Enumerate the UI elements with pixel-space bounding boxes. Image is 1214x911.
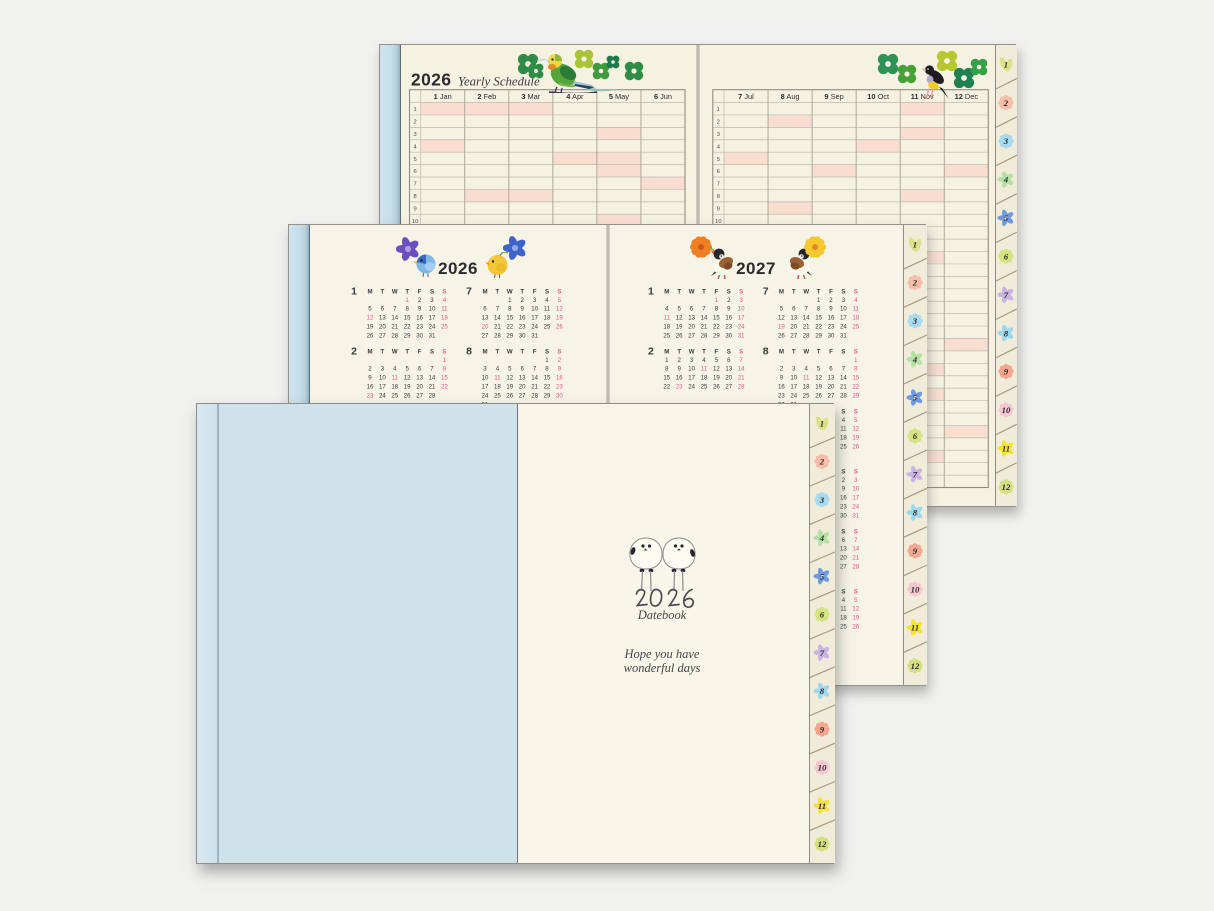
svg-text:18: 18	[441, 315, 448, 322]
svg-text:15: 15	[506, 315, 513, 322]
svg-text:4: 4	[496, 366, 500, 373]
svg-text:8: 8	[466, 346, 472, 358]
svg-text:M: M	[482, 348, 487, 355]
svg-text:4: 4	[702, 357, 706, 364]
svg-text:3: 3	[842, 297, 846, 304]
svg-text:W: W	[392, 348, 398, 355]
svg-text:28: 28	[852, 564, 859, 571]
svg-text:19: 19	[713, 375, 720, 382]
svg-text:S: S	[854, 408, 858, 415]
svg-text:14: 14	[429, 375, 436, 382]
svg-text:25: 25	[391, 392, 398, 399]
svg-text:5: 5	[717, 157, 720, 163]
svg-text:S: S	[727, 288, 731, 295]
svg-text:8: 8	[763, 346, 769, 358]
svg-text:F: F	[533, 348, 537, 355]
svg-text:22: 22	[852, 384, 859, 391]
svg-text:14: 14	[531, 375, 538, 382]
svg-text:1: 1	[717, 107, 720, 113]
svg-text:S: S	[557, 288, 561, 295]
svg-text:6 Jun: 6 Jun	[654, 92, 672, 101]
svg-text:21: 21	[738, 375, 745, 382]
svg-text:3: 3	[717, 132, 720, 138]
svg-text:12: 12	[818, 839, 827, 849]
svg-text:24: 24	[790, 392, 797, 399]
svg-text:28: 28	[840, 392, 847, 399]
svg-text:20: 20	[840, 555, 847, 562]
svg-text:25: 25	[803, 392, 810, 399]
svg-text:6: 6	[413, 169, 416, 175]
svg-text:17: 17	[482, 384, 489, 391]
svg-text:T: T	[817, 288, 821, 295]
svg-text:4: 4	[545, 297, 549, 304]
svg-text:17: 17	[738, 315, 745, 322]
svg-text:3: 3	[740, 297, 744, 304]
svg-text:25: 25	[544, 324, 551, 331]
svg-text:31: 31	[429, 332, 436, 339]
svg-text:2027: 2027	[736, 259, 776, 278]
svg-text:31: 31	[852, 512, 859, 519]
svg-text:7: 7	[763, 286, 769, 298]
svg-text:T: T	[817, 348, 821, 355]
svg-text:21: 21	[803, 324, 810, 331]
svg-text:8: 8	[717, 194, 720, 200]
svg-text:11: 11	[911, 623, 919, 633]
svg-text:18: 18	[803, 384, 810, 391]
svg-text:T: T	[677, 288, 681, 295]
svg-text:S: S	[841, 588, 845, 595]
svg-text:26: 26	[778, 332, 785, 339]
svg-text:31: 31	[840, 332, 847, 339]
svg-text:10: 10	[429, 306, 436, 313]
svg-text:S: S	[854, 588, 858, 595]
svg-text:3: 3	[854, 477, 858, 484]
svg-text:26: 26	[852, 444, 859, 451]
svg-text:7 Jul: 7 Jul	[738, 92, 754, 101]
svg-text:24: 24	[738, 324, 745, 331]
svg-text:31: 31	[738, 332, 745, 339]
svg-text:13: 13	[828, 375, 835, 382]
svg-text:6: 6	[717, 169, 720, 175]
svg-text:23: 23	[556, 384, 563, 391]
svg-text:7: 7	[913, 469, 918, 479]
svg-text:1: 1	[413, 107, 416, 113]
svg-text:F: F	[715, 348, 719, 355]
svg-text:6: 6	[1004, 252, 1009, 262]
svg-text:7: 7	[854, 537, 858, 544]
svg-text:20: 20	[725, 375, 732, 382]
svg-text:7: 7	[496, 306, 500, 313]
svg-text:12: 12	[676, 315, 683, 322]
svg-text:1: 1	[351, 286, 357, 298]
svg-text:17: 17	[379, 384, 386, 391]
svg-text:9: 9	[418, 306, 422, 313]
svg-text:16: 16	[725, 315, 732, 322]
svg-text:11: 11	[853, 306, 860, 313]
svg-text:T: T	[792, 348, 796, 355]
svg-text:2: 2	[558, 357, 562, 364]
svg-text:13: 13	[416, 375, 423, 382]
svg-text:W: W	[507, 348, 513, 355]
svg-text:27: 27	[416, 392, 423, 399]
svg-text:F: F	[533, 288, 537, 295]
svg-text:T: T	[405, 288, 409, 295]
svg-text:29: 29	[506, 332, 513, 339]
svg-text:W: W	[392, 288, 398, 295]
svg-text:19: 19	[676, 324, 683, 331]
svg-text:4: 4	[842, 417, 846, 424]
svg-text:25: 25	[852, 324, 859, 331]
svg-text:2: 2	[912, 278, 918, 288]
svg-text:4 Apr: 4 Apr	[566, 92, 584, 101]
svg-text:1: 1	[715, 297, 719, 304]
svg-text:28: 28	[429, 392, 436, 399]
svg-text:5: 5	[508, 366, 512, 373]
svg-text:11: 11	[392, 375, 399, 382]
svg-text:13: 13	[482, 315, 489, 322]
svg-text:5: 5	[913, 393, 918, 403]
svg-text:4: 4	[443, 297, 447, 304]
svg-text:18: 18	[840, 615, 847, 622]
svg-text:30: 30	[840, 512, 847, 519]
svg-text:15: 15	[663, 375, 670, 382]
svg-text:23: 23	[778, 392, 785, 399]
svg-text:10: 10	[531, 306, 538, 313]
svg-text:20: 20	[688, 324, 695, 331]
svg-text:12: 12	[556, 306, 563, 313]
svg-text:25: 25	[494, 392, 501, 399]
svg-text:8: 8	[817, 306, 821, 313]
svg-text:4: 4	[854, 297, 858, 304]
svg-text:9: 9	[913, 546, 918, 556]
svg-text:1: 1	[648, 286, 654, 298]
svg-text:2: 2	[727, 297, 731, 304]
svg-text:20: 20	[519, 384, 526, 391]
svg-text:6: 6	[820, 610, 825, 620]
svg-text:6: 6	[842, 537, 846, 544]
svg-text:20: 20	[790, 324, 797, 331]
svg-text:2: 2	[351, 346, 357, 358]
svg-text:7: 7	[805, 306, 809, 313]
svg-text:26: 26	[404, 392, 411, 399]
svg-text:23: 23	[416, 324, 423, 331]
svg-text:19: 19	[506, 384, 513, 391]
svg-text:3: 3	[1003, 136, 1009, 146]
svg-text:16: 16	[519, 315, 526, 322]
svg-text:T: T	[520, 288, 524, 295]
svg-text:17: 17	[840, 315, 847, 322]
svg-text:21: 21	[494, 324, 501, 331]
svg-text:2: 2	[829, 297, 833, 304]
svg-text:3: 3	[912, 316, 918, 326]
svg-text:26: 26	[506, 392, 513, 399]
svg-text:16: 16	[778, 384, 785, 391]
svg-text:2 Feb: 2 Feb	[477, 92, 496, 101]
svg-text:21: 21	[531, 384, 538, 391]
svg-text:21: 21	[840, 384, 847, 391]
svg-text:13: 13	[790, 315, 797, 322]
svg-text:5: 5	[558, 297, 562, 304]
svg-text:8: 8	[913, 508, 918, 518]
svg-text:2: 2	[842, 477, 846, 484]
svg-text:2: 2	[648, 346, 654, 358]
svg-text:21: 21	[429, 384, 436, 391]
svg-text:9: 9	[829, 306, 833, 313]
svg-text:9: 9	[678, 366, 682, 373]
svg-text:F: F	[418, 348, 422, 355]
svg-text:7: 7	[413, 182, 416, 188]
svg-text:5: 5	[678, 306, 682, 313]
svg-text:6: 6	[727, 357, 731, 364]
svg-text:20: 20	[482, 324, 489, 331]
svg-text:11: 11	[840, 606, 847, 613]
svg-text:25: 25	[840, 444, 847, 451]
svg-text:29: 29	[404, 332, 411, 339]
svg-text:6: 6	[418, 366, 422, 373]
svg-text:15: 15	[544, 375, 551, 382]
svg-text:17: 17	[688, 375, 695, 382]
svg-text:18: 18	[663, 324, 670, 331]
svg-text:9: 9	[727, 306, 731, 313]
svg-text:M: M	[779, 348, 784, 355]
svg-text:12: 12	[911, 661, 920, 671]
svg-text:S: S	[841, 468, 845, 475]
svg-text:5: 5	[1004, 213, 1009, 223]
svg-text:W: W	[507, 288, 513, 295]
svg-text:15: 15	[713, 315, 720, 322]
svg-text:6: 6	[829, 366, 833, 373]
svg-text:12: 12	[852, 426, 859, 433]
svg-text:26: 26	[852, 624, 859, 631]
svg-text:4: 4	[665, 306, 669, 313]
svg-text:28: 28	[701, 332, 708, 339]
svg-text:T: T	[677, 348, 681, 355]
svg-text:W: W	[803, 348, 809, 355]
svg-text:19: 19	[367, 324, 374, 331]
svg-text:16: 16	[367, 384, 374, 391]
svg-text:16: 16	[840, 495, 847, 502]
svg-text:11: 11	[803, 375, 810, 382]
svg-text:20: 20	[416, 384, 423, 391]
svg-text:S: S	[841, 288, 845, 295]
svg-text:6: 6	[913, 431, 918, 441]
svg-text:6: 6	[792, 306, 796, 313]
svg-text:13: 13	[519, 375, 526, 382]
svg-text:23: 23	[725, 324, 732, 331]
svg-text:3: 3	[533, 297, 537, 304]
svg-text:T: T	[792, 288, 796, 295]
svg-text:28: 28	[494, 332, 501, 339]
svg-text:27: 27	[519, 392, 526, 399]
svg-text:2: 2	[1003, 98, 1009, 108]
svg-text:2: 2	[413, 120, 416, 126]
svg-text:18: 18	[544, 315, 551, 322]
svg-text:7: 7	[430, 366, 434, 373]
svg-text:S: S	[557, 348, 561, 355]
svg-text:M: M	[779, 288, 784, 295]
svg-text:26: 26	[367, 332, 374, 339]
svg-text:10: 10	[482, 375, 489, 382]
svg-text:T: T	[496, 348, 500, 355]
svg-text:10: 10	[790, 375, 797, 382]
svg-text:4: 4	[1003, 175, 1009, 185]
svg-text:15: 15	[441, 375, 448, 382]
svg-text:24: 24	[429, 324, 436, 331]
svg-text:13: 13	[688, 315, 695, 322]
svg-text:28: 28	[738, 384, 745, 391]
svg-text:T: T	[381, 348, 385, 355]
svg-text:F: F	[829, 348, 833, 355]
svg-text:S: S	[430, 348, 434, 355]
svg-text:11: 11	[840, 426, 847, 433]
svg-text:2026: 2026	[411, 70, 451, 90]
svg-text:2: 2	[717, 120, 720, 126]
svg-text:17: 17	[790, 384, 797, 391]
svg-text:4: 4	[912, 354, 918, 364]
svg-text:S: S	[854, 468, 858, 475]
svg-text:12: 12	[1002, 482, 1011, 492]
svg-text:11: 11	[1002, 444, 1010, 454]
svg-text:22: 22	[441, 384, 448, 391]
svg-text:3: 3	[413, 132, 416, 138]
svg-text:5: 5	[715, 357, 719, 364]
svg-text:W: W	[689, 288, 695, 295]
svg-text:7: 7	[466, 286, 472, 298]
svg-text:23: 23	[519, 324, 526, 331]
svg-text:24: 24	[840, 324, 847, 331]
svg-text:5: 5	[820, 571, 825, 581]
svg-text:19: 19	[778, 324, 785, 331]
svg-text:3: 3	[792, 366, 796, 373]
svg-text:6: 6	[483, 306, 487, 313]
svg-text:27: 27	[840, 564, 847, 571]
svg-text:18: 18	[701, 375, 708, 382]
svg-text:27: 27	[790, 332, 797, 339]
svg-text:30: 30	[519, 332, 526, 339]
svg-text:15: 15	[815, 315, 822, 322]
svg-text:10: 10	[1002, 405, 1011, 415]
svg-text:M: M	[664, 348, 669, 355]
svg-text:12: 12	[713, 366, 720, 373]
svg-text:S: S	[841, 408, 845, 415]
svg-text:S: S	[442, 348, 446, 355]
svg-text:16: 16	[676, 375, 683, 382]
svg-text:13: 13	[840, 546, 847, 553]
svg-text:T: T	[520, 348, 524, 355]
svg-text:14: 14	[391, 315, 398, 322]
svg-text:2: 2	[418, 297, 422, 304]
svg-text:2: 2	[521, 297, 525, 304]
svg-text:29: 29	[544, 392, 551, 399]
svg-text:S: S	[739, 348, 743, 355]
svg-text:24: 24	[379, 392, 386, 399]
svg-text:7: 7	[717, 182, 720, 188]
svg-text:25: 25	[441, 324, 448, 331]
svg-text:7: 7	[702, 306, 706, 313]
svg-text:3: 3	[690, 357, 694, 364]
svg-text:27: 27	[482, 332, 489, 339]
svg-text:28: 28	[531, 392, 538, 399]
svg-text:9: 9	[521, 306, 525, 313]
svg-text:26: 26	[556, 324, 563, 331]
svg-text:12: 12	[506, 375, 513, 382]
svg-text:11: 11	[494, 375, 501, 382]
svg-text:8: 8	[413, 194, 416, 200]
svg-text:3 Mar: 3 Mar	[521, 92, 540, 101]
svg-text:25: 25	[840, 624, 847, 631]
svg-text:9: 9	[413, 207, 416, 213]
svg-text:7: 7	[533, 366, 537, 373]
svg-text:8: 8	[854, 366, 858, 373]
svg-text:S: S	[430, 288, 434, 295]
svg-text:22: 22	[815, 324, 822, 331]
svg-text:5: 5	[854, 597, 858, 604]
svg-text:23: 23	[828, 324, 835, 331]
svg-text:5: 5	[780, 306, 784, 313]
svg-text:1 Jan: 1 Jan	[434, 92, 452, 101]
svg-text:3: 3	[483, 366, 487, 373]
svg-text:S: S	[545, 288, 549, 295]
svg-text:1: 1	[665, 357, 669, 364]
svg-text:27: 27	[828, 392, 835, 399]
svg-text:9 Sep: 9 Sep	[824, 92, 843, 101]
svg-text:5 May: 5 May	[609, 92, 629, 101]
svg-text:14: 14	[701, 315, 708, 322]
svg-text:8: 8	[715, 306, 719, 313]
svg-text:9: 9	[558, 366, 562, 373]
svg-text:2: 2	[678, 357, 682, 364]
svg-text:29: 29	[852, 392, 859, 399]
svg-text:5: 5	[854, 417, 858, 424]
svg-text:M: M	[367, 348, 372, 355]
svg-text:11: 11	[818, 801, 826, 811]
svg-text:22: 22	[544, 384, 551, 391]
svg-text:1: 1	[508, 297, 512, 304]
svg-text:4: 4	[393, 366, 397, 373]
svg-text:19: 19	[815, 384, 822, 391]
svg-text:5: 5	[406, 366, 410, 373]
svg-text:S: S	[545, 348, 549, 355]
svg-text:30: 30	[828, 332, 835, 339]
svg-text:12: 12	[815, 375, 822, 382]
svg-text:4: 4	[717, 144, 721, 150]
svg-text:18: 18	[852, 315, 859, 322]
svg-text:5: 5	[817, 366, 821, 373]
svg-text:9: 9	[842, 486, 846, 493]
svg-text:S: S	[854, 348, 858, 355]
svg-text:1: 1	[854, 357, 858, 364]
svg-text:S: S	[854, 528, 858, 535]
svg-text:22: 22	[663, 384, 670, 391]
svg-text:22: 22	[506, 324, 513, 331]
svg-text:1: 1	[406, 297, 410, 304]
svg-text:28: 28	[803, 332, 810, 339]
svg-text:14: 14	[738, 366, 745, 373]
svg-text:11: 11	[664, 315, 671, 322]
svg-text:16: 16	[556, 375, 563, 382]
svg-text:25: 25	[701, 384, 708, 391]
svg-text:18: 18	[494, 384, 501, 391]
svg-text:T: T	[702, 288, 706, 295]
svg-text:S: S	[442, 288, 446, 295]
svg-text:F: F	[418, 288, 422, 295]
svg-text:T: T	[405, 348, 409, 355]
svg-text:10: 10	[688, 366, 695, 373]
svg-text:8: 8	[443, 366, 447, 373]
svg-text:S: S	[727, 348, 731, 355]
svg-text:1: 1	[443, 357, 447, 364]
svg-text:W: W	[803, 288, 809, 295]
